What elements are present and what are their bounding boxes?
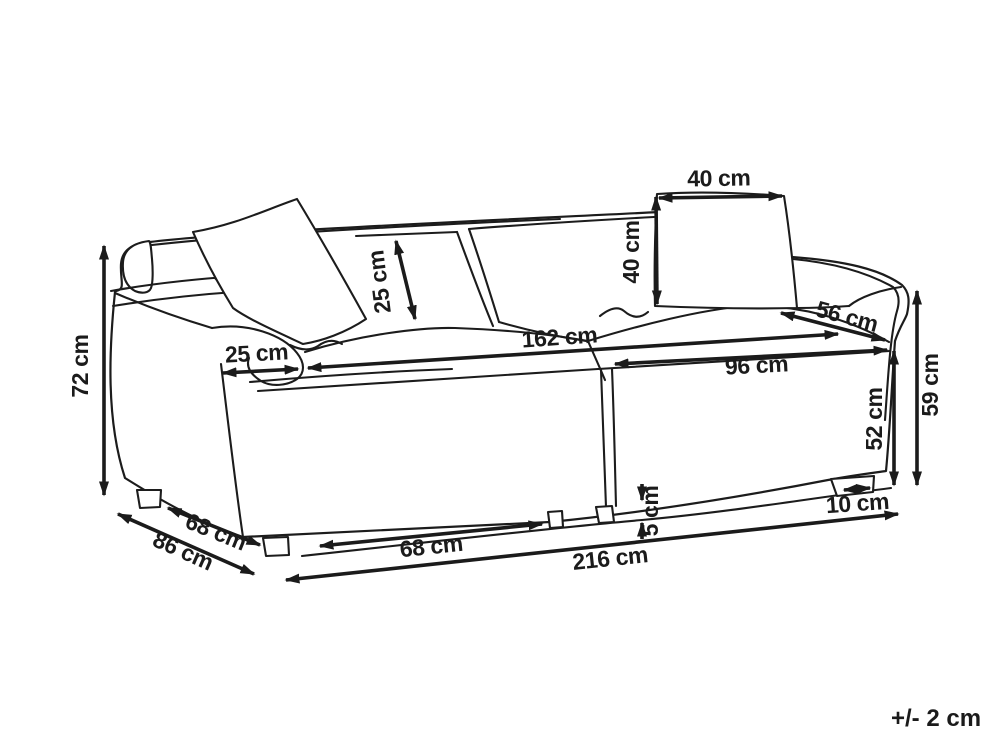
sofa-dimension-diagram: 72 cm 25 cm 25 cm 40 cm 40 cm 56 cm 162 … [0,0,999,749]
leg-front-left [263,537,289,556]
dim-label-armrest-width: 25 cm [224,338,288,367]
pillow-right [655,193,797,309]
dim-label-total-height: 72 cm [67,334,93,397]
leg-seam-left [548,511,563,528]
dim-label-side-height: 59 cm [917,353,943,416]
dim-arrow-pillow-width [659,196,782,198]
dim-label-pillow-height: 40 cm [618,220,644,283]
dim-label-leg-height: 5 cm [637,486,663,537]
dim-label-pillow-width: 40 cm [687,164,751,191]
diagram-canvas: 72 cm 25 cm 25 cm 40 cm 40 cm 56 cm 162 … [0,0,999,749]
dim-label-leg-spacing: 68 cm [398,530,464,562]
dim-label-base-height: 52 cm [861,387,887,450]
leg-front-left-armrest [137,490,161,508]
leg-seam-right [596,506,614,523]
dim-arrow-pillow-height [656,197,657,304]
tolerance-note: +/- 2 cm [891,705,981,732]
dim-label-seat-width-total: 162 cm [521,321,598,352]
dim-label-leg-width: 10 cm [825,488,890,518]
dim-label-seat-width-section: 96 cm [724,350,788,379]
